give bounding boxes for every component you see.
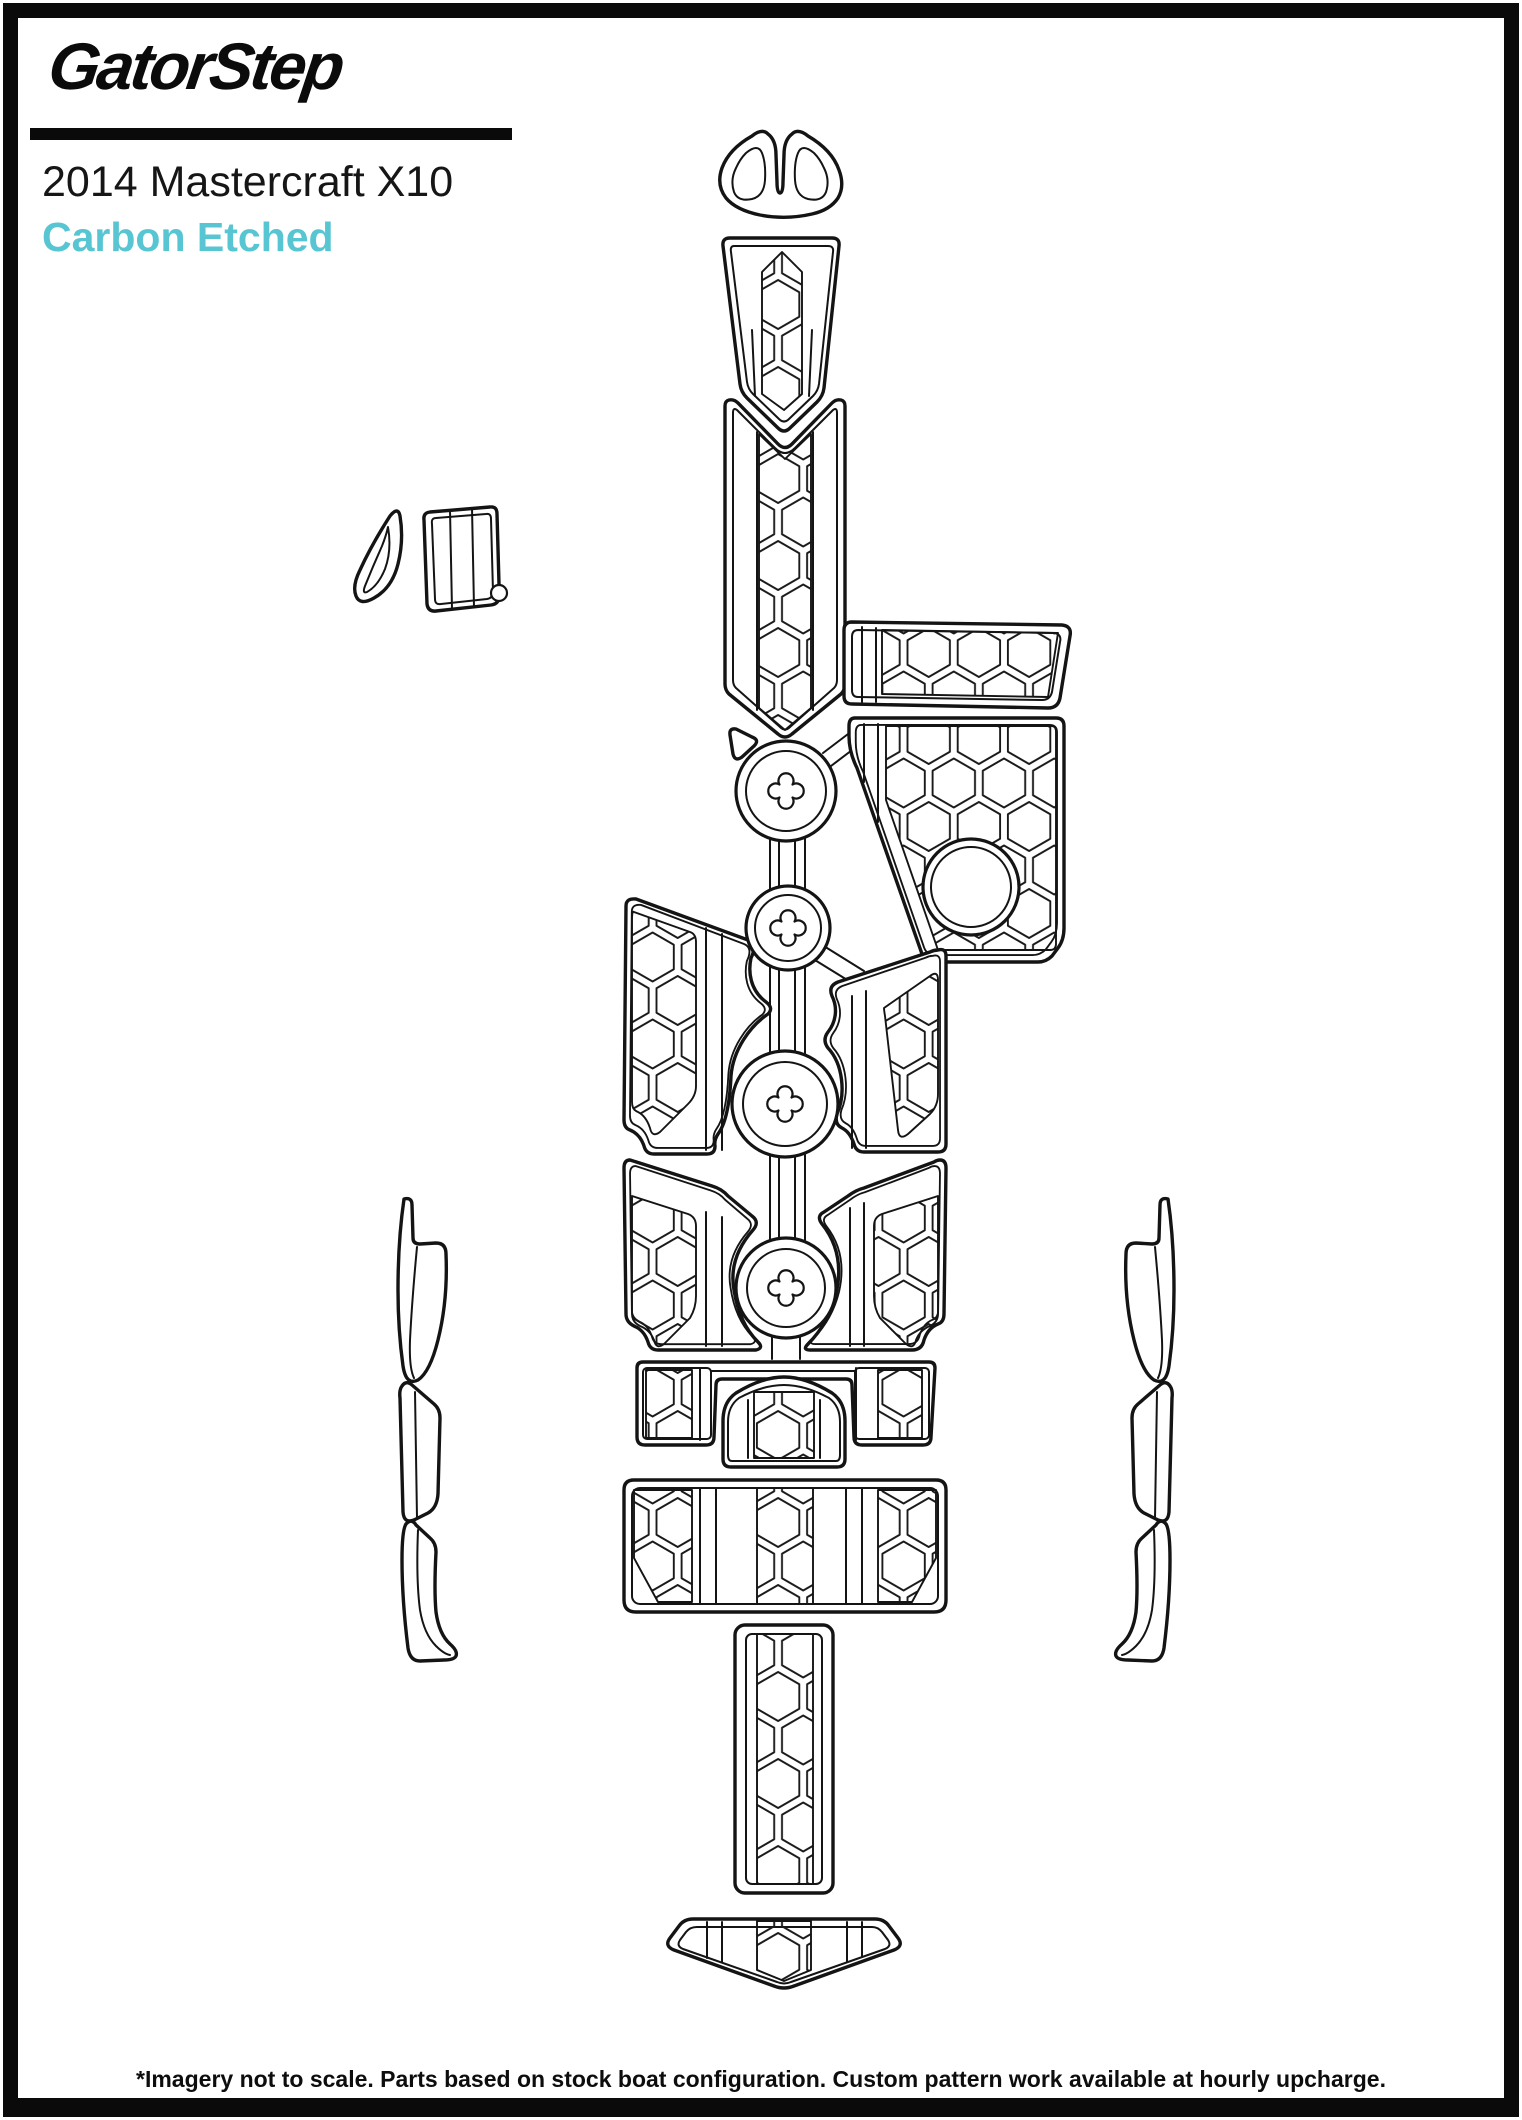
starboard-storage-trim-pad: [844, 622, 1070, 708]
boat-pad-diagram: [0, 0, 1522, 2120]
swim-step-pad: [735, 1625, 833, 1893]
observer-seat-pad: [424, 507, 507, 611]
disclaimer-text: *Imagery not to scale. Parts based on st…: [0, 2066, 1522, 2093]
starboard-gunwale-rail: [1116, 1199, 1174, 1661]
template-sheet: { "header": { "logo_text": "GatorStep", …: [0, 0, 1522, 2120]
ski-pylon-ring-3: [732, 1051, 838, 1157]
rear-bench-pad: [624, 1480, 946, 1612]
bow-walkway-pad: [723, 238, 839, 431]
center-walkway-pad: [725, 400, 845, 737]
engine-vent-arch-pad: [723, 1377, 845, 1467]
observer-seat-side-pad: [355, 511, 402, 602]
port-cockpit-pad-lower: [624, 1160, 761, 1350]
ski-pylon-ring-2: [746, 886, 830, 970]
starboard-cockpit-pad-upper: [825, 950, 946, 1152]
cup-holder-notch: [491, 585, 507, 601]
transom-pad: [668, 1919, 901, 1988]
ski-pylon-ring-1: [736, 741, 836, 841]
starboard-sundeck-pad: [849, 718, 1064, 962]
ski-pylon-ring-4: [736, 1238, 836, 1338]
port-gunwale-rail: [398, 1199, 456, 1661]
starboard-cockpit-pad-lower: [805, 1160, 946, 1350]
bow-cap-pad: [720, 131, 842, 217]
engine-hole-ring: [923, 839, 1019, 935]
